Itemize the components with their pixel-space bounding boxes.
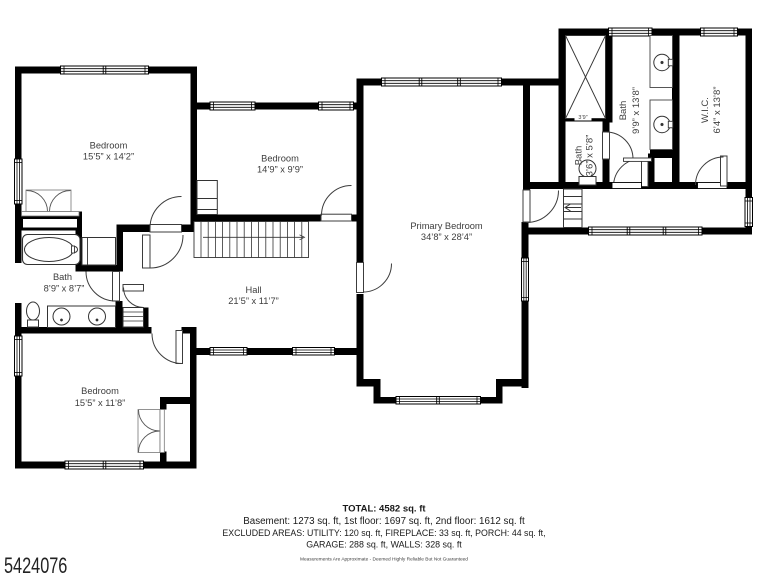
svg-text:GARAGE: 288 sq. ft, WALLS: 328: GARAGE: 288 sq. ft, WALLS: 328 sq. ft: [306, 540, 462, 550]
svg-text:W.I.C.: W.I.C.: [700, 97, 711, 123]
svg-text:Bath: Bath: [53, 272, 72, 282]
svg-text:5424076: 5424076: [4, 554, 67, 576]
svg-text:Hall: Hall: [245, 285, 261, 295]
svg-text:9’9” x 13’8”: 9’9” x 13’8”: [631, 87, 642, 134]
svg-text:34’8” x 28’4”: 34’8” x 28’4”: [421, 232, 472, 242]
svg-text:15’5” x 14’2”: 15’5” x 14’2”: [83, 152, 134, 162]
svg-text:EXCLUDED AREAS: UTILITY: 120 s: EXCLUDED AREAS: UTILITY: 120 sq. ft, FIR…: [222, 528, 545, 538]
svg-text:15’5” x 11’8”: 15’5” x 11’8”: [75, 398, 125, 408]
svg-text:Primary Bedroom: Primary Bedroom: [410, 221, 483, 231]
svg-text:14’9” x 9’9”: 14’9” x 9’9”: [257, 164, 303, 174]
svg-text:Basement: 1273 sq. ft, 1st flo: Basement: 1273 sq. ft, 1st floor: 1697 s…: [243, 516, 525, 527]
svg-text:Measurements Are Approximate -: Measurements Are Approximate - Deemed Hi…: [300, 557, 468, 563]
svg-text:3’9”: 3’9”: [578, 115, 587, 121]
svg-text:Bath: Bath: [574, 146, 585, 166]
svg-text:Bedroom: Bedroom: [81, 386, 119, 396]
svg-text:21’5” x 11’7”: 21’5” x 11’7”: [228, 296, 278, 306]
svg-text:8’9” x 8’7”: 8’9” x 8’7”: [44, 283, 85, 293]
svg-text:TOTAL: 4582 sq. ft: TOTAL: 4582 sq. ft: [342, 504, 426, 515]
svg-text:Bedroom: Bedroom: [90, 141, 128, 151]
svg-text:Bedroom: Bedroom: [261, 153, 299, 163]
svg-text:Bath: Bath: [618, 101, 629, 121]
svg-text:3’6” x 5’8”: 3’6” x 5’8”: [585, 135, 596, 177]
svg-text:6’4” x 13’8”: 6’4” x 13’8”: [712, 87, 723, 134]
